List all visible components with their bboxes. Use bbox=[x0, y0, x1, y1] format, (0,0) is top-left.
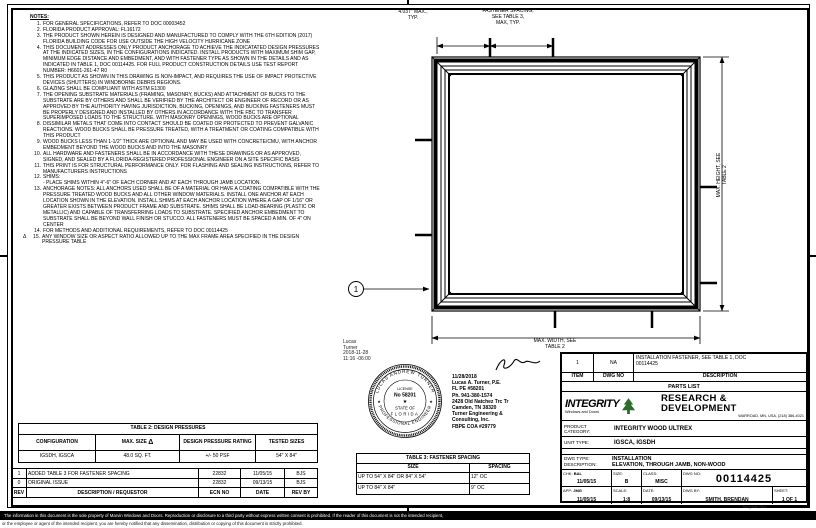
check-size-class-dwgno-row: CHK: BAL 11/05/15 SIZE: B CLASS: MISC DW… bbox=[562, 470, 806, 487]
department-address: WARROAD, MN, USA, (218) 386-4021 bbox=[661, 414, 804, 418]
notes-block: NOTES: 1.FOR GENERAL SPECIFICATIONS, REF… bbox=[30, 15, 322, 246]
table2-configuration: IGSDH, IGSCA bbox=[19, 451, 95, 462]
engineer-info-block: 11/28/2018 Lucas A. Turner, P.E. FL PE #… bbox=[452, 374, 554, 430]
confidentiality-line2: or the employee or agent of the intended… bbox=[2, 521, 814, 526]
window-elevation-drawing: 1 bbox=[330, 8, 816, 356]
date-value: 09/13/15 bbox=[642, 497, 681, 503]
zone-tick-top bbox=[407, 0, 409, 5]
app-label: APP: bbox=[563, 488, 572, 493]
note-10: 10.ALL HARDWARE AND FASTENERS SHALL BE I… bbox=[30, 152, 322, 164]
brand-name: INTEGRITY bbox=[565, 399, 619, 410]
seal-florida: FLORIDA bbox=[391, 412, 420, 417]
class-cell: CLASS: MISC bbox=[642, 470, 682, 486]
dwg-no-value: 00114425 bbox=[682, 473, 806, 485]
rev-header-by: REV BY bbox=[284, 488, 317, 497]
scale-label: SCALE: bbox=[613, 488, 627, 493]
unit-type-label: UNIT TYPE: bbox=[562, 440, 614, 445]
scale-cell: SCALE: 1:8 bbox=[612, 487, 642, 504]
item-balloon-number: 1 bbox=[354, 285, 359, 294]
rev-ecn: 22832 bbox=[198, 469, 240, 478]
note-3: 3.THE PRODUCT SHOWN HEREIN IS DESIGNED A… bbox=[30, 34, 322, 46]
description-value: ELEVATION, THROUGH JAMB, NON-WOOD bbox=[612, 462, 725, 468]
template-revision-note: Template Rev bbox=[742, 504, 766, 509]
brand-subtitle: Windows and Doors bbox=[565, 410, 619, 414]
note-text: THE OPENING SUBSTRATE MATERIALS (FRAMING… bbox=[43, 93, 322, 123]
drawing-sheet: NOTES: 1.FOR GENERAL SPECIFICATIONS, REF… bbox=[0, 0, 816, 528]
rev-date: 11/05/15 bbox=[240, 469, 284, 478]
note-number: 8. bbox=[30, 122, 43, 140]
table3-header-spacing: SPACING bbox=[469, 464, 529, 472]
table2-title: TABLE 2: DESIGN PRESSURES bbox=[19, 424, 317, 434]
product-category-label: PRODUCT CATEGORY: bbox=[562, 424, 614, 434]
rev-header-description: DESCRIPTION / REQUESTOR bbox=[26, 488, 198, 497]
rev-header-date: DATE bbox=[240, 488, 284, 497]
seal-star-icon: ★ bbox=[403, 399, 408, 405]
table2-max-size: 48.0 SQ. FT. bbox=[95, 451, 179, 462]
design-pressure-table: TABLE 2: DESIGN PRESSURES CONFIGURATION … bbox=[18, 423, 318, 463]
rev-date: 09/13/15 bbox=[240, 479, 284, 487]
parts-header-item: ITEM bbox=[562, 373, 594, 381]
note-text: THE PRODUCT SHOWN HEREIN IS DESIGNED AND… bbox=[43, 34, 322, 46]
note-text: ANY WINDOW SIZE OR ASPECT RATIO ALLOWED … bbox=[42, 235, 322, 247]
dwg-by-label: DWG BY: bbox=[683, 488, 700, 493]
confidentiality-bar: The information in this document is the … bbox=[0, 511, 816, 520]
table3-title: TABLE 3: FASTENER SPACING bbox=[357, 454, 529, 463]
seal-state-of: STATE OF bbox=[395, 406, 415, 411]
evergreen-tree-icon bbox=[621, 398, 636, 415]
dwg-by-cell: DWG BY: SMITH, BRENDAN bbox=[682, 487, 773, 504]
parts-header-description: DESCRIPTION bbox=[634, 373, 806, 381]
parts-list-row: 1 NA INSTALLATION FASTENER, SEE TABLE 1,… bbox=[562, 354, 806, 373]
rev-number: 0 bbox=[12, 479, 26, 487]
dim-corner-label: 4.037" MAX., TYP. bbox=[384, 10, 442, 22]
date-label: DATE: bbox=[643, 488, 654, 493]
part-item: 1 bbox=[562, 354, 594, 372]
rev-header-rev: REV bbox=[12, 488, 26, 497]
rev-number: 1 bbox=[12, 469, 26, 478]
brand-row: INTEGRITY Windows and Doors RESEARCH & D… bbox=[562, 392, 806, 421]
max-size-label: MAX. SIZE bbox=[122, 440, 147, 446]
part-description: INSTALLATION FASTENER, SEE TABLE 1, DOC … bbox=[634, 354, 806, 372]
size-cell: SIZE: B bbox=[612, 470, 642, 486]
description-label: DESCRIPTION: bbox=[564, 462, 612, 468]
date-cell: DATE: 09/13/15 bbox=[642, 487, 682, 504]
table2-header-tested-sizes: TESTED SIZES bbox=[255, 435, 317, 450]
seal-star-right-icon: ★ bbox=[429, 399, 433, 404]
product-category-value: INTEGRITY WOOD ULTREX bbox=[614, 426, 806, 432]
note-number: 10. bbox=[30, 152, 43, 164]
note-number: 4. bbox=[30, 46, 43, 76]
size-value: B bbox=[612, 479, 641, 485]
fastener-spacing-table: TABLE 3: FASTENER SPACING SIZE SPACING U… bbox=[356, 453, 530, 495]
seal-star-left-icon: ★ bbox=[377, 399, 381, 404]
unit-type-row: UNIT TYPE: IGSCA, IGSDH bbox=[562, 437, 806, 449]
table2-design-pressure: +/- 50 PSF bbox=[179, 451, 255, 462]
rev-description: ADDED TABLE 3 FOR FASTENER SPACING bbox=[26, 469, 198, 478]
rev-ecn: 22832 bbox=[198, 479, 240, 487]
table2-header-design-pressure: DESIGN PRESSURE RATING bbox=[179, 435, 255, 450]
rev-header-ecn: ECN NO bbox=[198, 488, 240, 497]
brand-logo: INTEGRITY Windows and Doors bbox=[562, 398, 661, 415]
note-8: 8.DISSIMILAR METALS THAT COME INTO CONTA… bbox=[30, 122, 322, 140]
seal-license-number: No 58201 bbox=[394, 393, 416, 399]
frame-profile bbox=[432, 57, 700, 311]
part-dwg-no: NA bbox=[594, 354, 634, 372]
rev-by: BJS bbox=[284, 479, 317, 487]
note-11: 11.THIS PRINT IS FOR STRUCTURAL PERFORMA… bbox=[30, 164, 322, 176]
parts-header-dwg-no: DWG NO bbox=[594, 373, 634, 381]
table3-size-2: UP TO 84" X 84" bbox=[357, 484, 469, 494]
dwg-no-cell: DWG NO: 00114425 bbox=[682, 470, 806, 486]
rev-by: BJS bbox=[284, 469, 317, 478]
app-scale-date-dwgby-sheet-row: APP: JMG 11/05/15 SCALE: 1:8 DATE: 09/13… bbox=[562, 487, 806, 504]
dim-max-width-label: MAX. WIDTH, SEE TABLE 2 bbox=[505, 339, 605, 351]
revision-delta-icon: Δ bbox=[148, 440, 153, 446]
revision-table: 1 ADDED TABLE 3 FOR FASTENER SPACING 228… bbox=[11, 468, 318, 498]
table3-header-size: SIZE bbox=[357, 464, 469, 472]
table3-spacing-2: 9" OC bbox=[469, 484, 529, 494]
dwg-by-value: SMITH, BRENDAN bbox=[682, 497, 772, 503]
scale-value: 1:8 bbox=[612, 497, 641, 503]
unit-type-value: IGSCA, IGSDH bbox=[614, 440, 806, 446]
note-15: Δ15.ANY WINDOW SIZE OR ASPECT RATIO ALLO… bbox=[30, 235, 322, 247]
fastener-ticks bbox=[415, 38, 717, 328]
note-text: ANCHORAGE NOTES: ALL ANCHORS USED SHALL … bbox=[43, 187, 322, 228]
note-13: 13.ANCHORAGE NOTES: ALL ANCHORS USED SHA… bbox=[30, 187, 322, 228]
note-text: DISSIMILAR METALS THAT COME INTO CONTACT… bbox=[43, 122, 322, 140]
sheet-label: SHEET: bbox=[774, 488, 788, 493]
dim-fastener-spacing-label: FASTENER SPACING, SEE TABLE 3, MAX, TYP. bbox=[452, 9, 564, 26]
engineer-signature bbox=[494, 356, 542, 374]
zone-tick-left bbox=[0, 255, 8, 257]
note-number: 13. bbox=[30, 187, 43, 228]
sheet-cell: SHEET: 1 OF 1 bbox=[773, 487, 806, 504]
app-value: JMG bbox=[573, 488, 582, 493]
note-number: 3. bbox=[30, 34, 43, 46]
chk-label: CHK: bbox=[563, 471, 573, 476]
table2-tested-sizes: 54" X 84" bbox=[255, 451, 317, 462]
chk-value: BAL bbox=[574, 471, 582, 476]
parts-list-title: PARTS LIST bbox=[562, 382, 806, 392]
note-7: 7.THE OPENING SUBSTRATE MATERIALS (FRAMI… bbox=[30, 93, 322, 123]
table3-size-1: UP TO 54" X 84" OR 84" X 54" bbox=[357, 473, 469, 483]
note-number: 15. bbox=[29, 235, 42, 247]
note-number: 7. bbox=[30, 93, 43, 123]
parts-list-header-row: ITEM DWG NO DESCRIPTION bbox=[562, 373, 806, 382]
title-block: 1 NA INSTALLATION FASTENER, SEE TABLE 1,… bbox=[560, 352, 808, 503]
rev-description: ORIGINAL ISSUE bbox=[26, 479, 198, 487]
chk-cell: CHK: BAL 11/05/15 bbox=[562, 470, 612, 486]
department-title: RESEARCH & DEVELOPMENT bbox=[661, 394, 804, 414]
size-label: SIZE: bbox=[613, 471, 623, 476]
app-cell: APP: JMG 11/05/15 bbox=[562, 487, 612, 504]
sheet-value: 1 OF 1 bbox=[773, 497, 806, 503]
seal-license-label: LICENSE bbox=[397, 387, 413, 391]
chk-date: 11/05/15 bbox=[562, 479, 611, 485]
product-category-row: PRODUCT CATEGORY: INTEGRITY WOOD ULTREX bbox=[562, 421, 806, 437]
dwg-type-row: DWG TYPE:INSTALLATION DESCRIPTION:ELEVAT… bbox=[562, 455, 806, 470]
note-4: 4.THIS DOCUMENT ADDRESSES ONLY PRODUCT A… bbox=[30, 46, 322, 76]
note-text: THIS DOCUMENT ADDRESSES ONLY PRODUCT ANC… bbox=[43, 46, 322, 76]
table2-header-configuration: CONFIGURATION bbox=[19, 435, 95, 450]
class-label: CLASS: bbox=[643, 471, 657, 476]
note-text: ALL HARDWARE AND FASTENERS SHALL BE IN A… bbox=[43, 152, 322, 164]
dim-max-height-label: MAX. HEIGHT, SEE TABLE 2 bbox=[717, 125, 731, 225]
table2-header-max-size: MAX. SIZE Δ bbox=[95, 435, 179, 450]
app-date: 11/05/15 bbox=[562, 497, 611, 503]
table3-spacing-1: 12" OC bbox=[469, 473, 529, 483]
note-text: THIS PRINT IS FOR STRUCTURAL PERFORMANCE… bbox=[43, 164, 322, 176]
class-value: MISC bbox=[642, 479, 681, 485]
